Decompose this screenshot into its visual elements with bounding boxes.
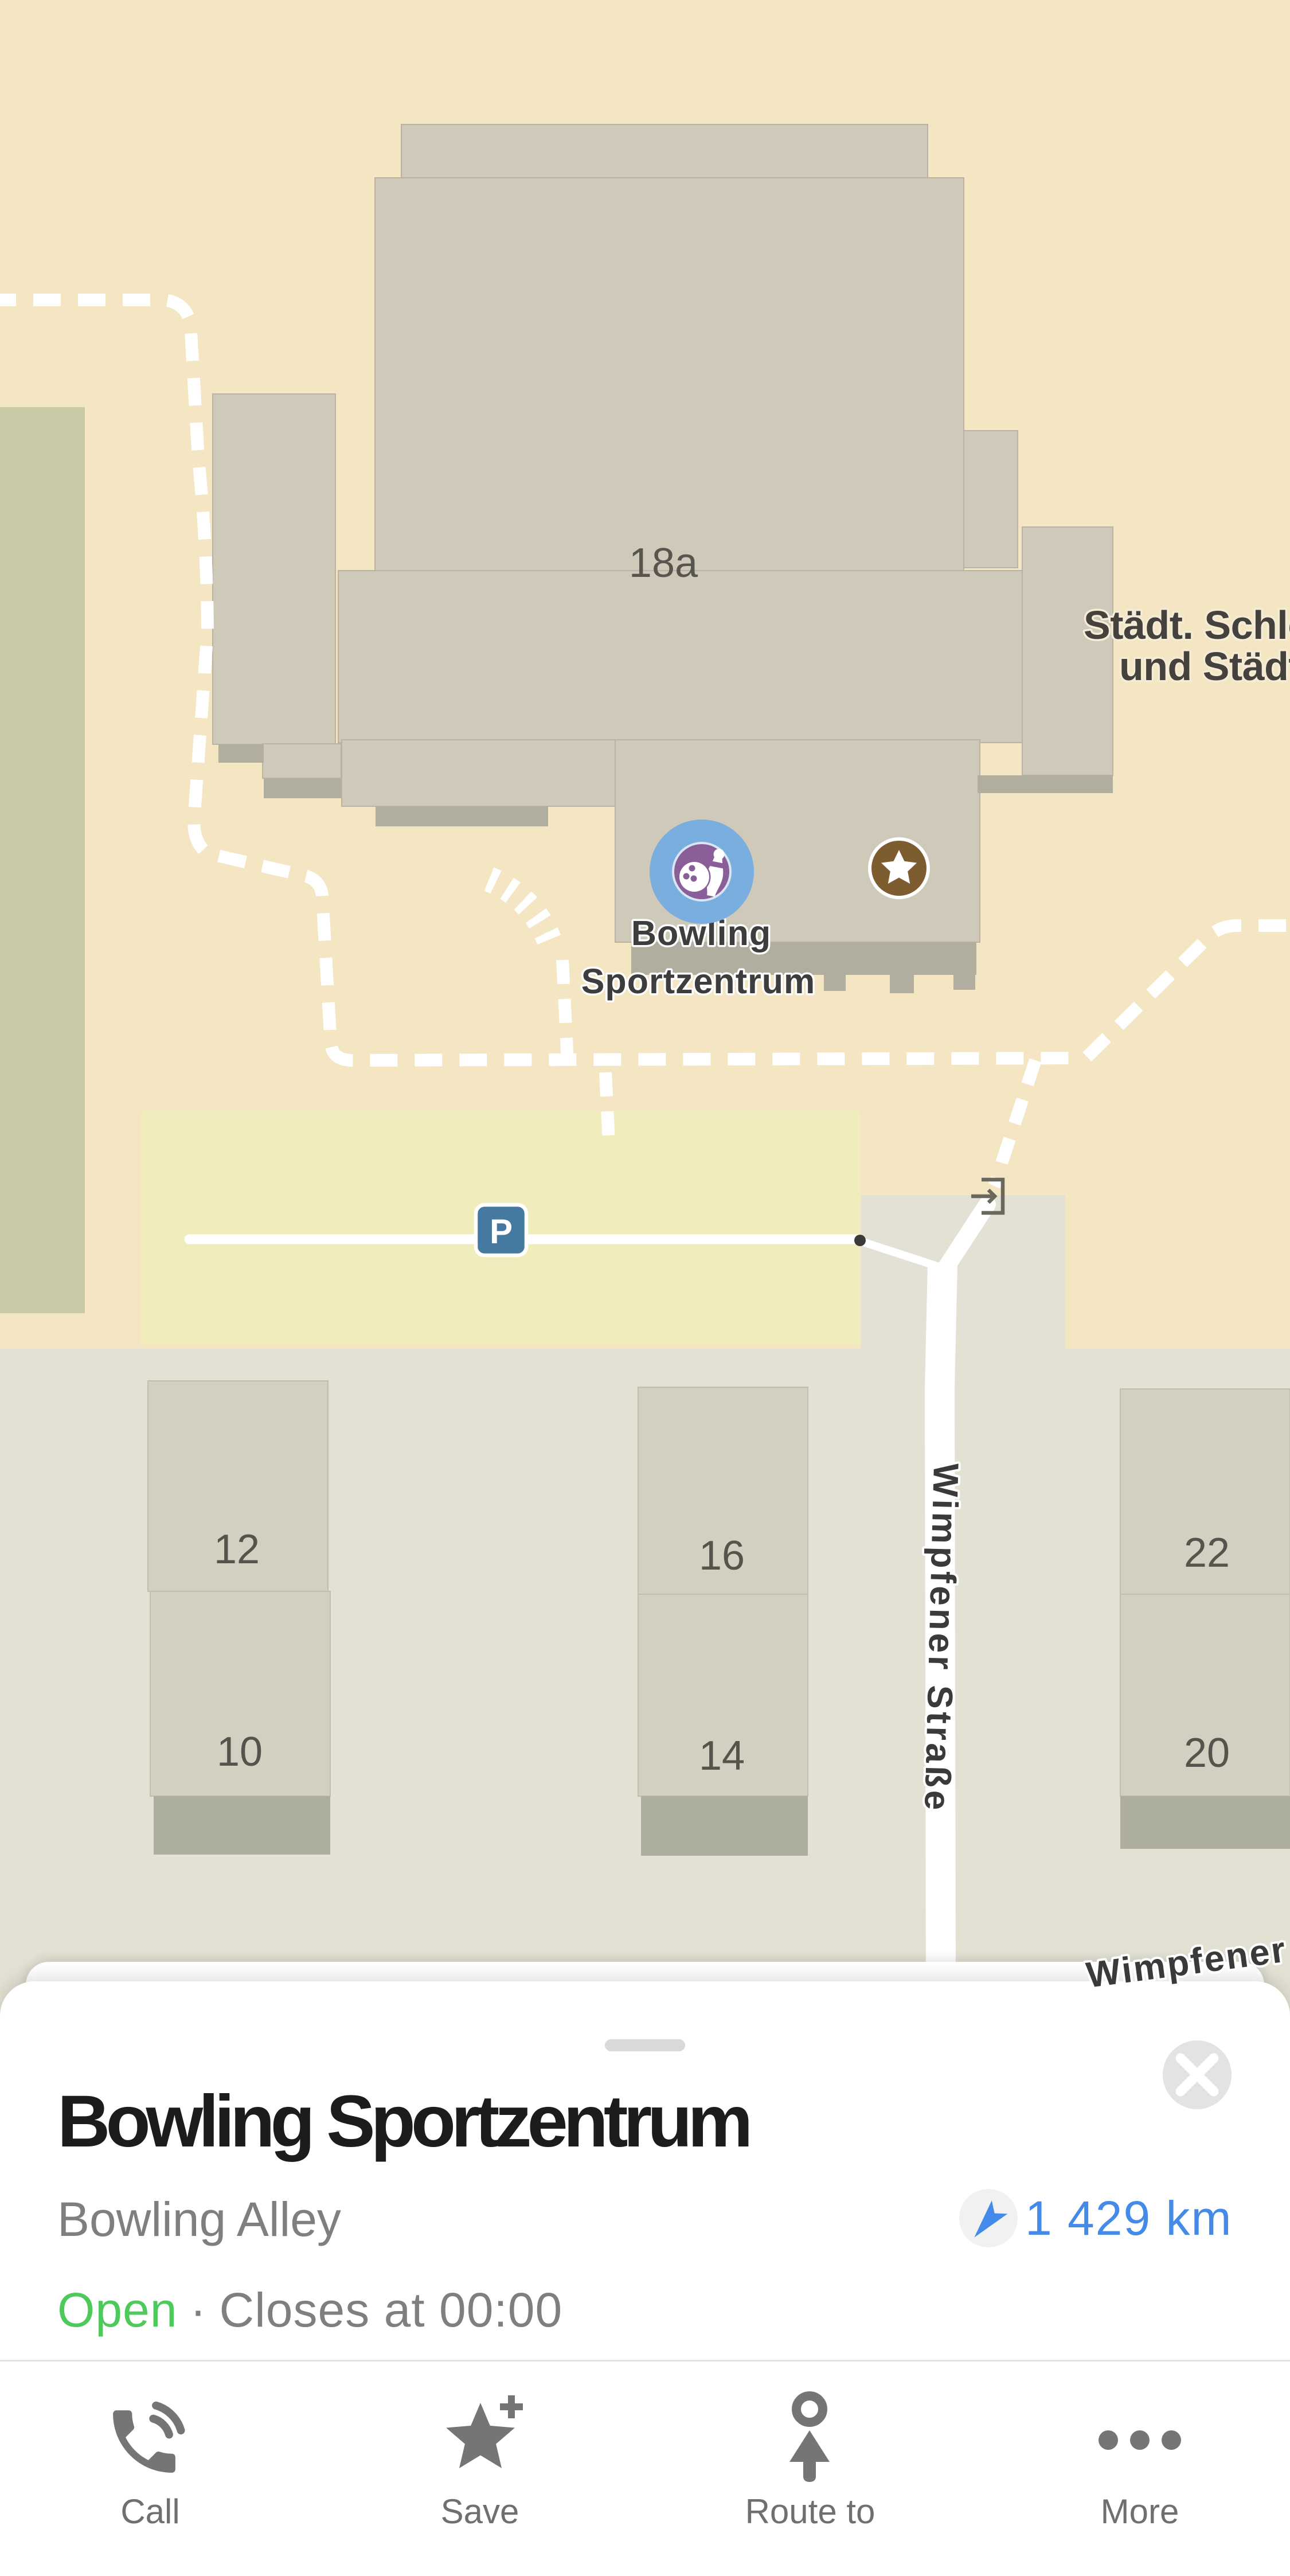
- svg-text:14: 14: [699, 1733, 745, 1779]
- svg-text:16: 16: [699, 1533, 745, 1579]
- svg-text:22: 22: [1184, 1530, 1230, 1576]
- svg-text:10: 10: [217, 1729, 263, 1775]
- svg-text:P: P: [490, 1212, 513, 1251]
- svg-text:Städt. Schlo: Städt. Schlo: [1084, 603, 1290, 647]
- svg-text:18a: 18a: [629, 540, 698, 586]
- svg-text:und Städt.: und Städt.: [1119, 644, 1290, 689]
- svg-text:12: 12: [214, 1527, 260, 1572]
- svg-text:Sportzentrum: Sportzentrum: [581, 962, 816, 1001]
- svg-text:20: 20: [1184, 1730, 1230, 1776]
- svg-text:Wimpfener: Wimpfener: [1084, 1930, 1289, 1996]
